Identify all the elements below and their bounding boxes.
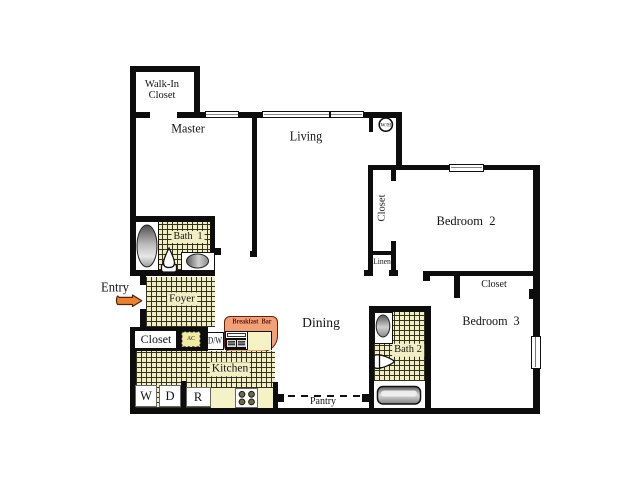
svg-text:W/H: W/H (381, 122, 392, 128)
